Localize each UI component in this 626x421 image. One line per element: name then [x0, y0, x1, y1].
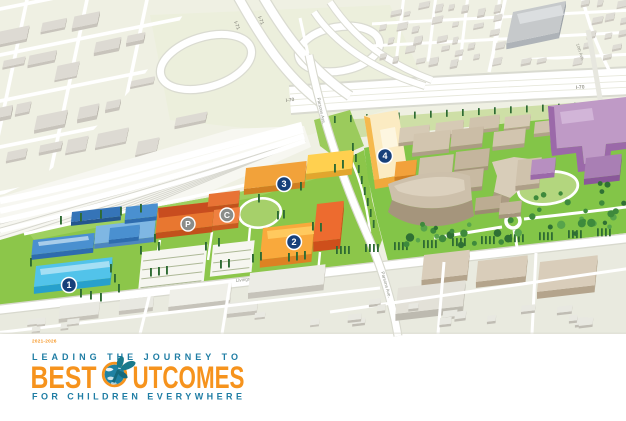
- svg-text:4: 4: [382, 151, 387, 161]
- svg-text:C: C: [224, 210, 230, 220]
- svg-text:BEST: BEST: [31, 359, 97, 395]
- svg-text:UTCOMES: UTCOMES: [133, 359, 245, 395]
- svg-text:2021-2026: 2021-2026: [32, 339, 57, 344]
- svg-text:FOR CHILDREN EVERYWHERE: FOR CHILDREN EVERYWHERE: [32, 392, 242, 402]
- svg-text:3: 3: [281, 179, 286, 189]
- svg-text:I-70: I-70: [285, 97, 295, 104]
- svg-text:1: 1: [66, 280, 71, 290]
- svg-text:P: P: [185, 219, 191, 229]
- svg-text:I-70: I-70: [576, 84, 585, 91]
- svg-text:2: 2: [291, 237, 296, 247]
